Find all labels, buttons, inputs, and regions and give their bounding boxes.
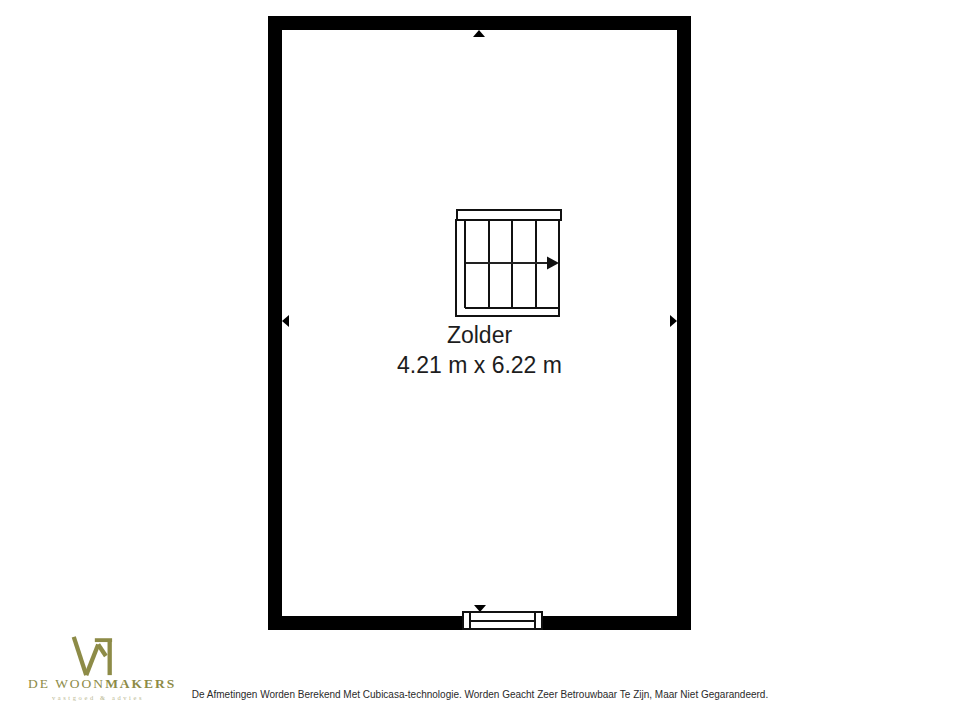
window-end-cap <box>534 613 536 628</box>
room-label: Zolder 4.21 m x 6.22 m <box>268 320 691 380</box>
room-name: Zolder <box>268 320 691 350</box>
window-symbol <box>462 611 543 630</box>
disclaimer-text: De Afmetingen Worden Berekend Met Cubica… <box>0 689 960 700</box>
room-dimensions: 4.21 m x 6.22 m <box>268 350 691 380</box>
wall-marker-up-icon <box>473 30 485 37</box>
woonmakers-logo-icon <box>68 632 114 678</box>
window-center-line <box>471 620 534 622</box>
staircase-icon <box>454 208 566 320</box>
